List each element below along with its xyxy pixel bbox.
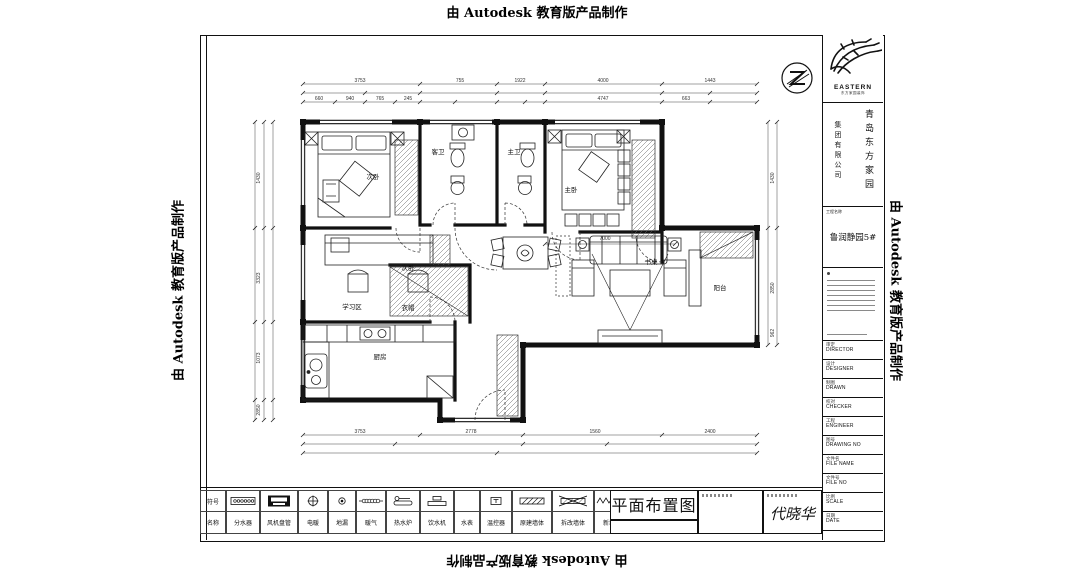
- svg-text:1430: 1430: [770, 172, 776, 183]
- room-label-master-bath: 主卫: [508, 147, 522, 156]
- project-name-section: 工程名称 鲁润静园5#: [823, 207, 883, 268]
- field-director: 审定 DIRECTOR: [823, 341, 883, 360]
- balcony-desk: [689, 250, 701, 306]
- water-dispenser-icon: [421, 491, 453, 512]
- legend-header-col: 符号 名称: [200, 490, 226, 534]
- svg-text:3753: 3753: [354, 78, 365, 84]
- legend-col-original-wall: 原建墙体: [512, 490, 552, 534]
- svg-text:7000: 7000: [599, 236, 610, 242]
- field-drawn-en: DRAWN: [826, 385, 883, 391]
- kitchen-counter: [303, 325, 455, 400]
- note-text-line-bottom: [827, 334, 867, 335]
- brand-name: EASTERN: [823, 84, 883, 91]
- field-designer: 设计 DESIGNER: [823, 360, 883, 379]
- demolish-wall-icon: [553, 491, 593, 512]
- svg-text:755: 755: [456, 78, 465, 84]
- company-name-section: 青岛东方家园 集团有限公司: [823, 103, 883, 207]
- field-date-en: DATE: [826, 518, 883, 524]
- tv-unit: [592, 254, 668, 343]
- room-label-desk: 书桌: [645, 257, 659, 266]
- field-drawing-no: 图号 DRAWING NO: [823, 436, 883, 455]
- dining-cabinet-dashed: [556, 236, 570, 296]
- entry-cabinet-hatch: [497, 335, 518, 416]
- note-bullet-icon: [827, 272, 830, 275]
- floor-plan-sheet: 由 Autodesk 教育版产品制作 由 Autodesk 教育版产品制作 由 …: [0, 0, 1074, 576]
- drawing-no-cell: [698, 490, 763, 534]
- legend-col-floor-drain: 地漏: [328, 490, 356, 534]
- svg-text:940: 940: [346, 96, 355, 102]
- drawing-title: 平面布置图: [611, 491, 697, 521]
- watermark-right: 由 Autodesk 教育版产品制作: [888, 141, 907, 441]
- room-label-closet: 衣帽: [402, 303, 416, 312]
- field-file-name-en: FILE NAME: [826, 461, 883, 467]
- fan-coil-icon: [261, 491, 297, 512]
- title-block-footer-blank: [823, 531, 883, 541]
- floor-drain-icon: [329, 491, 355, 512]
- svg-text:1073: 1073: [256, 352, 262, 363]
- legend-col-manifold: 分水器: [226, 490, 260, 534]
- designer-signature: 代晓华: [764, 503, 821, 524]
- field-drawing-no-en: DRAWING NO: [826, 442, 883, 448]
- field-checker-en: CHECKER: [826, 404, 883, 410]
- svg-text:2850: 2850: [256, 404, 262, 415]
- legend-table: 符号 名称 分水器 风机盘管 电暖 地漏 暖气: [200, 490, 624, 534]
- field-drawn: 制图 DRAWN: [823, 379, 883, 398]
- radiator-icon: [357, 491, 385, 512]
- dining-set: [491, 237, 561, 269]
- bed-master: [548, 130, 630, 226]
- legend-col-thermostat: 温控器: [480, 490, 512, 534]
- floor-plan-drawing: 3753 755 1922 4000 1443 660 940 765 245 …: [205, 38, 820, 488]
- watermark-left: 由 Autodesk 教育版产品制作: [168, 141, 187, 441]
- thermostat-icon: [481, 491, 511, 512]
- hatched-cabinets: [390, 140, 753, 416]
- svg-text:660: 660: [315, 96, 324, 102]
- original-wall-icon: [513, 491, 551, 512]
- legend-symbol-header: 符号: [201, 491, 225, 512]
- svg-text:2778: 2778: [465, 429, 476, 435]
- legend-col-dispenser: 饮水机: [420, 490, 454, 534]
- watermark-top: 由 Autodesk 教育版产品制作: [387, 2, 687, 21]
- field-file-no-en: FILE NO: [826, 480, 883, 486]
- svg-text:962: 962: [770, 329, 776, 338]
- room-label-kitchen: 厨房: [374, 352, 387, 361]
- svg-text:1560: 1560: [589, 429, 600, 435]
- field-file-name: 文件名 FILE NAME: [823, 455, 883, 474]
- svg-text:3323: 3323: [256, 272, 262, 283]
- sofa-group: [572, 236, 686, 296]
- svg-text:663: 663: [682, 96, 691, 102]
- svg-text:3753: 3753: [354, 429, 365, 435]
- brand-logo-section: EASTERN 东方家园装饰: [823, 35, 883, 103]
- brand-subname: 东方家园装饰: [823, 91, 883, 96]
- room-label-guest-bath: 客卫: [432, 147, 446, 156]
- legend-col-radiator: 暖气: [356, 490, 386, 534]
- legend-col-demolish-wall: 拆改墙体: [552, 490, 594, 534]
- svg-text:4000: 4000: [597, 78, 608, 84]
- svg-text:2850: 2850: [770, 282, 776, 293]
- notes-section: [823, 268, 883, 341]
- field-engineer-en: ENGINEER: [826, 423, 883, 429]
- room-label-balcony: 阳台: [714, 283, 727, 292]
- field-checker: 校对 CHECKER: [823, 398, 883, 417]
- svg-text:1430: 1430: [256, 172, 262, 183]
- room-label-bedroom2: 次卧: [367, 172, 381, 181]
- svg-text:4747: 4747: [597, 96, 608, 102]
- room-label-study-bedroom: 次卧: [402, 263, 416, 272]
- svg-text:1922: 1922: [514, 78, 525, 84]
- drawing-title-cell: 平面布置图: [610, 490, 698, 534]
- blank-symbol: [455, 491, 479, 512]
- field-date: 日期 DATE: [823, 512, 883, 531]
- room-label-study-area: 学习区: [342, 302, 362, 311]
- boiler-icon: [387, 491, 419, 512]
- wall-piers: [300, 119, 760, 423]
- eastern-branches-logo-icon: [824, 35, 882, 81]
- small-header-line: [702, 494, 732, 497]
- signature-cell: 代晓华: [763, 490, 822, 534]
- field-designer-en: DESIGNER: [826, 366, 883, 372]
- svg-text:245: 245: [404, 96, 413, 102]
- guest-bath-fixtures: [450, 125, 474, 195]
- wardrobe-hatch: [395, 140, 418, 215]
- company-name-line2: 集团有限公司: [833, 121, 843, 181]
- svg-text:1443: 1443: [704, 78, 715, 84]
- project-name-label: 工程名称: [826, 209, 842, 215]
- svg-text:765: 765: [376, 96, 385, 102]
- field-engineer: 工程 ENGINEER: [823, 417, 883, 436]
- watermark-bottom: 由 Autodesk 教育版产品制作: [387, 552, 687, 571]
- svg-text:2400: 2400: [704, 429, 715, 435]
- title-block: EASTERN 东方家园装饰 青岛东方家园 集团有限公司 工程名称 鲁润静园5#…: [822, 35, 883, 540]
- field-scale: 比例 SCALE: [823, 493, 883, 512]
- legend-col-fan-coil: 风机盘管: [260, 490, 298, 534]
- legend-col-heater: 电暖: [298, 490, 328, 534]
- project-name: 鲁润静园5#: [823, 231, 883, 243]
- master-cabinet-hatch: [632, 140, 655, 238]
- legend-name-header: 名称: [201, 512, 225, 533]
- field-file-no: 文件号 FILE NO: [823, 474, 883, 493]
- circle-cross-icon: [299, 491, 327, 512]
- note-text-lines: [827, 280, 875, 314]
- windows: [302, 121, 759, 422]
- manifold-icon: [227, 491, 259, 512]
- field-director-en: DIRECTOR: [826, 347, 883, 353]
- legend-strip: 符号 名称 分水器 风机盘管 电暖 地漏 暖气: [200, 487, 822, 540]
- legend-col-boiler: 热水炉: [386, 490, 420, 534]
- field-scale-en: SCALE: [826, 499, 883, 505]
- company-name-line1: 青岛东方家园: [862, 109, 875, 193]
- master-bath-fixtures: [518, 143, 535, 195]
- small-header-line: [767, 494, 797, 497]
- room-label-master-bedroom: 主卧: [565, 185, 579, 194]
- legend-col-meter: 水表: [454, 490, 480, 534]
